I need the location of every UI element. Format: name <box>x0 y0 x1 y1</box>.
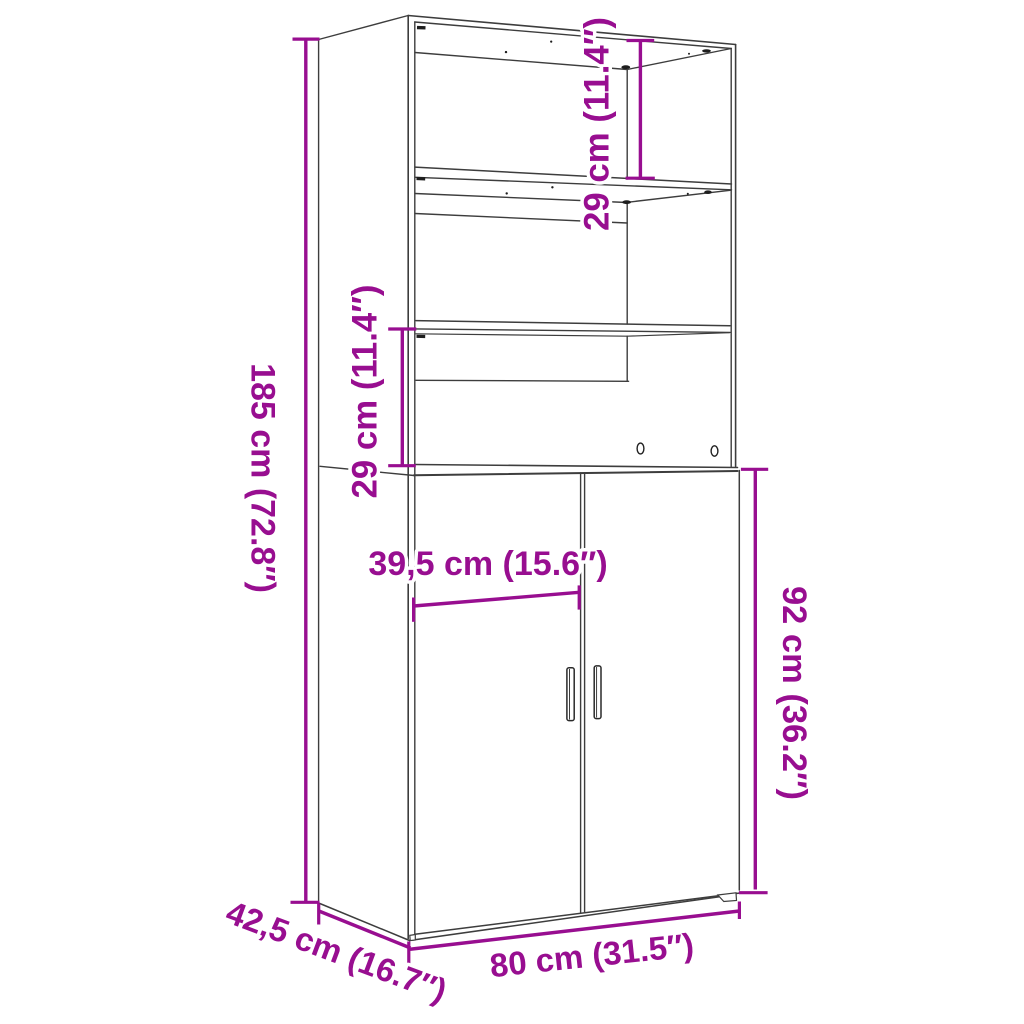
svg-text:29 cm (11.4″): 29 cm (11.4″) <box>346 285 385 499</box>
svg-text:185 cm (72.8″): 185 cm (72.8″) <box>244 363 282 593</box>
svg-text:39,5 cm (15.6″): 39,5 cm (15.6″) <box>368 545 607 583</box>
svg-text:92 cm (36.2″): 92 cm (36.2″) <box>775 586 813 800</box>
svg-text:29 cm (11.4″): 29 cm (11.4″) <box>577 17 616 231</box>
